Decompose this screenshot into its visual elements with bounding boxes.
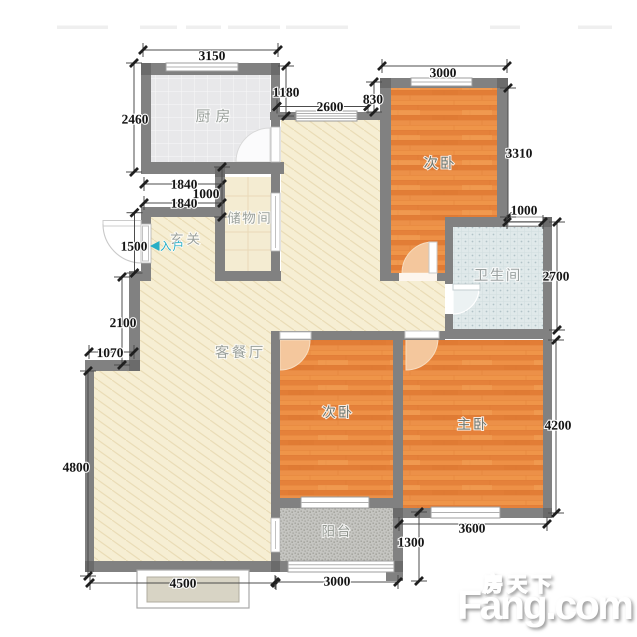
svg-text:Fang.com: Fang.com — [457, 582, 631, 628]
